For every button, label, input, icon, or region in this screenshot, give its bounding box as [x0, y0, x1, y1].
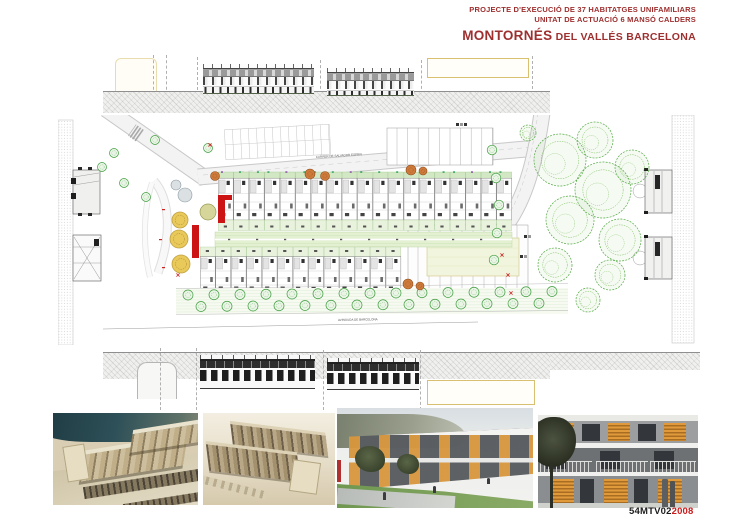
wood-garage-door [604, 479, 628, 506]
house-unit [373, 171, 388, 230]
tank-outline [137, 362, 177, 399]
tree-icon [547, 287, 557, 297]
tree-icon [456, 299, 466, 309]
tree-icon [204, 144, 213, 153]
elevation-row-a [200, 355, 315, 389]
tree-icon [248, 301, 258, 311]
tree-icon [508, 299, 518, 309]
tree-icon [110, 149, 119, 158]
person-silhouette [433, 486, 436, 493]
person-silhouette [670, 481, 675, 507]
glass-door [580, 479, 594, 506]
parking-top-right [387, 128, 493, 165]
faint-building-outline [115, 58, 157, 94]
house-unit [249, 171, 264, 230]
house-unit [234, 171, 249, 230]
autumn-tree-icon [403, 279, 413, 289]
render-red-wall [337, 460, 341, 482]
olive-tree-icon [200, 204, 216, 220]
tree-icon [482, 299, 492, 309]
yellow-tree-icon [172, 212, 188, 228]
tree-icon [521, 287, 531, 297]
tree-icon [469, 287, 479, 297]
avenue [103, 284, 568, 330]
house-unit [358, 171, 373, 230]
elevation-row-a [203, 64, 314, 94]
left-section-strip [58, 120, 73, 345]
tree-icon [261, 289, 271, 299]
yellow-tree-icon [170, 230, 188, 248]
wood-garage-door [550, 479, 574, 506]
park-tree-icon [595, 260, 625, 290]
person-silhouette [662, 479, 668, 507]
tree-icon [120, 179, 129, 188]
guide-line [420, 350, 421, 410]
park-tree-icon [577, 122, 613, 158]
tree-icon [491, 173, 501, 183]
drawing-code: 54MTV022008 [629, 506, 694, 517]
tree-icon [489, 255, 499, 265]
park-tree-icon [538, 248, 572, 282]
autumn-tree-icon [416, 282, 424, 290]
house-unit [450, 171, 465, 230]
elevation-row-b [327, 68, 414, 96]
park-tree-icon [546, 196, 594, 244]
model-photo-1 [53, 413, 198, 505]
guide-line [153, 55, 154, 95]
tree-trunk [550, 463, 553, 508]
autumn-tree-icon [321, 172, 330, 181]
house-unit [404, 171, 419, 230]
page-title: MONTORNÉS DEL VALLÉS BARCELONA [462, 27, 696, 45]
park-trees [520, 122, 649, 312]
right-section-strip [672, 115, 694, 343]
tree-icon [326, 300, 336, 310]
guide-line [160, 348, 161, 410]
presentation-board: PROJECTE D'EXECUCIÓ DE 37 HABITATGES UNI… [0, 0, 750, 530]
project-line-2: UNITAT DE ACTUACIÓ 6 MANSÓ CALDERS [462, 15, 696, 25]
guide-line [421, 60, 422, 94]
house-unit [466, 171, 481, 230]
tree-icon [378, 300, 388, 310]
house-unit [265, 171, 280, 230]
tree-icon [487, 145, 497, 155]
green-median [215, 232, 512, 247]
tree-icon [274, 301, 284, 311]
guide-line [166, 55, 167, 95]
house-unit [435, 171, 450, 230]
left-section-building-2 [73, 235, 101, 281]
project-line-1: PROJECTE D'EXECUCIÓ DE 37 HABITATGES UNI… [462, 5, 696, 15]
tree-icon [492, 228, 502, 238]
wood-slat-panel [664, 423, 686, 441]
person-silhouette [487, 478, 490, 484]
autumn-tree-icon [305, 169, 315, 179]
house-unit [296, 171, 311, 230]
left-section-building-1 [71, 167, 100, 216]
house-unit [419, 171, 434, 230]
tree-icon [339, 289, 349, 299]
project-code: 54MTV02 [629, 506, 672, 517]
street-render [337, 408, 533, 508]
autumn-tree-icon [211, 172, 220, 181]
tree-icon [404, 300, 414, 310]
house-unit [388, 171, 403, 230]
house-unit [327, 171, 342, 230]
yellow-outline-building [427, 380, 535, 405]
autumn-tree-icon [406, 165, 416, 175]
window [638, 424, 656, 441]
housing-row-top [218, 171, 511, 230]
tree-icon [209, 290, 219, 300]
red-wall [192, 225, 199, 258]
tree-icon [235, 290, 245, 300]
tree-icon [352, 300, 362, 310]
tree-icon [196, 302, 206, 312]
tree-icon [222, 301, 232, 311]
house-unit [342, 171, 357, 230]
parking-top-left [224, 124, 330, 159]
elevation-row-b [327, 358, 419, 390]
ground-hatch-right [550, 352, 700, 370]
window [582, 424, 600, 441]
house-unit [280, 171, 295, 230]
park-tree-icon [615, 150, 649, 184]
render-tree [397, 454, 419, 474]
guide-line [532, 56, 533, 94]
glass-door [634, 479, 648, 506]
tree-icon [365, 288, 375, 298]
guide-line [196, 348, 197, 410]
red-wall [218, 195, 232, 200]
tree-icon [443, 288, 453, 298]
year-label: 2008 [672, 506, 694, 517]
model-building-end [289, 459, 321, 495]
tree-icon [430, 299, 440, 309]
title-block: PROJECTE D'EXECUCIÓ DE 37 HABITATGES UNI… [462, 5, 696, 45]
park-tree-icon [599, 219, 641, 261]
guide-line [323, 350, 324, 410]
facade-render [538, 415, 698, 508]
tree-icon [142, 193, 151, 202]
render-tree [355, 446, 385, 472]
street-label-bottom: AVINGUDA DE BARCELONA [338, 317, 378, 322]
guide-line [320, 60, 321, 94]
yellow-tree-icon [172, 255, 190, 273]
site-plan: CARRER DE SALVADOR ESPRIU CARRER DE CAN … [58, 115, 700, 345]
person-silhouette [383, 492, 386, 500]
yellow-outline-building [427, 58, 529, 78]
red-wall [218, 200, 225, 223]
tree-icon [98, 163, 107, 172]
diagonal-street [106, 115, 206, 179]
tree-icon [313, 289, 323, 299]
guide-line [197, 57, 198, 95]
model-photo-2 [203, 413, 335, 505]
tree-icon [494, 200, 504, 210]
tree-icon [534, 298, 544, 308]
tree-icon [151, 136, 160, 145]
tree-icon [287, 289, 297, 299]
tree-icon [495, 287, 505, 297]
tree-icon [300, 301, 310, 311]
tree-icon [391, 288, 401, 298]
wood-slat-panel [608, 423, 630, 441]
tree-icon [183, 290, 193, 300]
autumn-tree-icon [419, 167, 427, 175]
